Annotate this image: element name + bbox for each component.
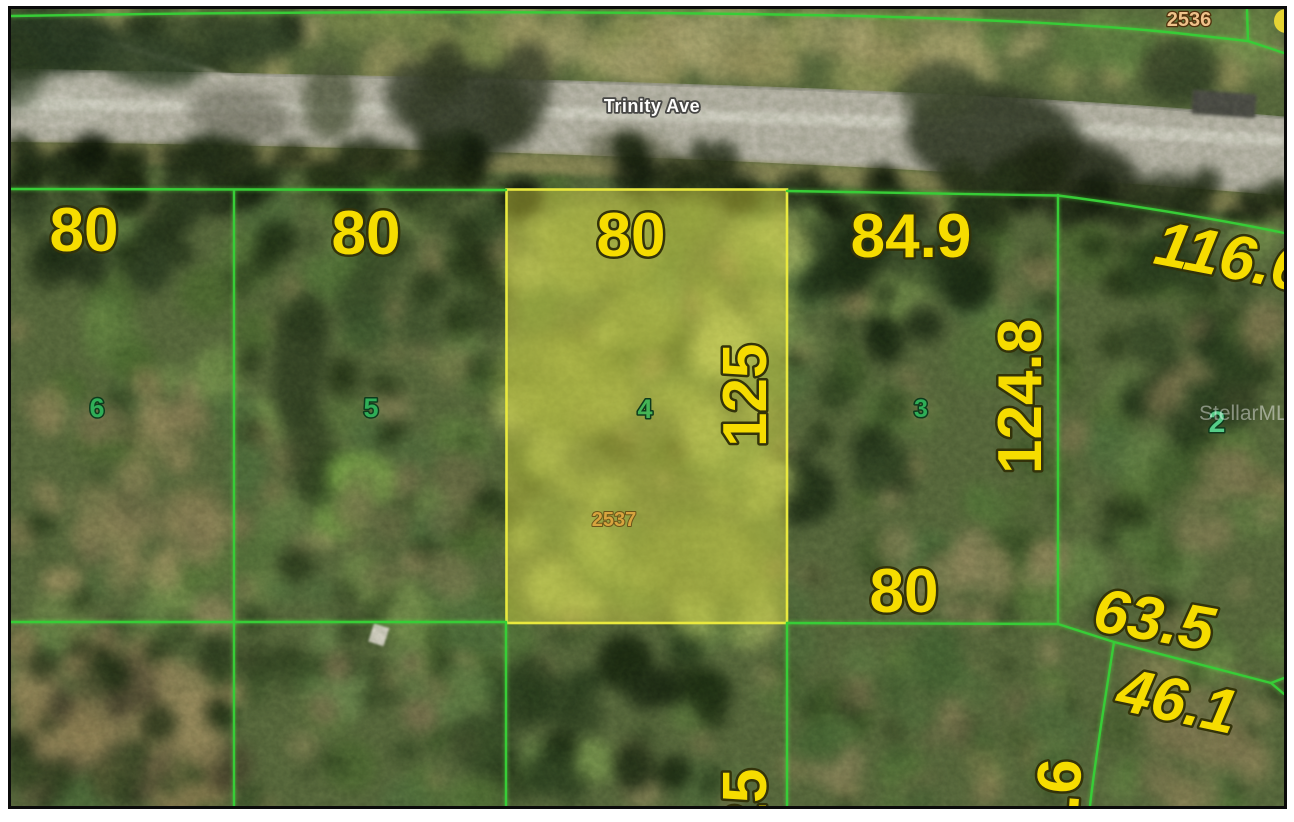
svg-text:6: 6 — [89, 393, 104, 423]
svg-text:125: 125 — [711, 344, 780, 447]
svg-text:3: 3 — [914, 395, 928, 423]
svg-text:84.9: 84.9 — [851, 202, 972, 271]
svg-text:80: 80 — [50, 196, 119, 265]
svg-text:125: 125 — [711, 769, 780, 806]
svg-text:.6: .6 — [1023, 757, 1095, 806]
svg-text:2536: 2536 — [1167, 9, 1212, 31]
svg-text:5: 5 — [363, 393, 378, 423]
svg-text:80: 80 — [332, 199, 401, 268]
svg-text:124.8: 124.8 — [986, 319, 1055, 474]
svg-text:StellarMLS: StellarMLS — [1199, 402, 1284, 425]
svg-text:80: 80 — [870, 557, 939, 626]
svg-text:80: 80 — [597, 201, 666, 270]
svg-text:Trinity Ave: Trinity Ave — [604, 96, 700, 116]
svg-text:4: 4 — [637, 394, 652, 424]
svg-text:2537: 2537 — [592, 509, 637, 531]
